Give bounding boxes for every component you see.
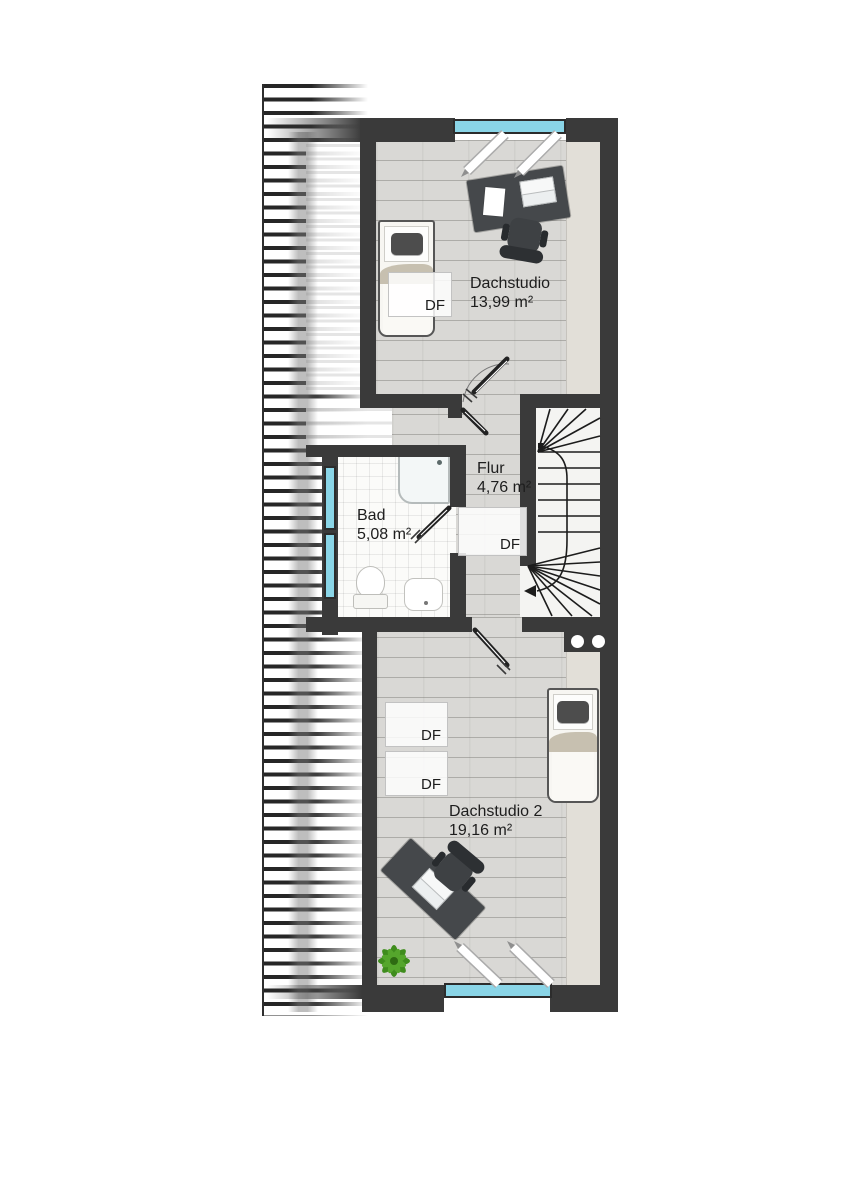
bed-headboard <box>384 226 429 262</box>
stairwell-floor-foot <box>520 566 536 617</box>
room-label-flur: Flur 4,76 m² <box>477 459 531 497</box>
df-label: DF <box>421 727 441 744</box>
bed-pillow <box>391 233 423 255</box>
wall-top-fade <box>262 118 362 142</box>
knee-wall-strip-top <box>566 140 600 394</box>
wall-bottom-fade <box>262 985 362 999</box>
wall-bottom-left <box>362 985 444 1012</box>
sink <box>404 578 443 611</box>
roof-window-df-flur: DF <box>458 507 527 556</box>
pipe-dot <box>592 635 605 648</box>
roof-window-df-dachstudio2-b: DF <box>385 751 448 796</box>
bed-dachstudio2 <box>547 688 599 803</box>
roof-hatch-shading <box>288 132 318 1012</box>
room-name: Dachstudio 2 <box>449 802 542 821</box>
roof-void-panel-middle <box>306 408 392 445</box>
window-bad-upper <box>324 466 336 530</box>
wall-dachstudio-flur <box>360 394 462 408</box>
room-name: Flur <box>477 459 531 478</box>
bed-blanket <box>549 732 597 752</box>
df-label: DF <box>425 297 445 314</box>
paper-sheet <box>483 187 505 217</box>
stairwell-floor <box>536 408 600 617</box>
installation-shaft <box>564 630 612 652</box>
wall-left-lower <box>362 632 377 1012</box>
room-name: Dachstudio <box>470 274 550 293</box>
window-bottom <box>444 983 552 998</box>
sink-drain <box>424 601 428 605</box>
wall-left-upper <box>360 118 376 408</box>
window-top <box>453 119 566 134</box>
wall-door-stub <box>448 408 462 418</box>
wall-right <box>600 118 618 1012</box>
laptop-screen <box>520 177 554 195</box>
wall-flur-dachstudio2 <box>306 617 472 632</box>
toilet-tank <box>353 594 388 609</box>
room-name: Bad <box>357 506 411 525</box>
shower-drain <box>437 460 442 465</box>
pipe-dot <box>571 635 584 648</box>
roof-window-df-dachstudio: DF <box>388 272 452 317</box>
office-chair-dachstudio <box>498 213 551 264</box>
laptop <box>519 176 557 207</box>
window-bad-lower <box>324 533 336 599</box>
bed-headboard <box>553 694 593 730</box>
roof-window-df-dachstudio2-a: DF <box>385 702 448 747</box>
room-label-dachstudio: Dachstudio 13,99 m² <box>470 274 550 312</box>
room-area: 5,08 m² <box>357 525 411 544</box>
wall-bad-right-upper <box>450 445 466 507</box>
bed-pillow <box>557 701 589 723</box>
df-label: DF <box>421 776 441 793</box>
bed-mattress <box>552 752 594 803</box>
room-area: 19,16 m² <box>449 821 542 840</box>
room-label-dachstudio2: Dachstudio 2 19,16 m² <box>449 802 542 840</box>
room-area: 4,76 m² <box>477 478 531 497</box>
room-label-bad: Bad 5,08 m² <box>357 506 411 544</box>
df-label: DF <box>500 536 520 553</box>
room-area: 13,99 m² <box>470 293 550 312</box>
shower <box>398 452 450 504</box>
floorplan-canvas: DF DF DF DF Dachstudio 13,99 m² Flur 4,7… <box>0 0 848 1200</box>
